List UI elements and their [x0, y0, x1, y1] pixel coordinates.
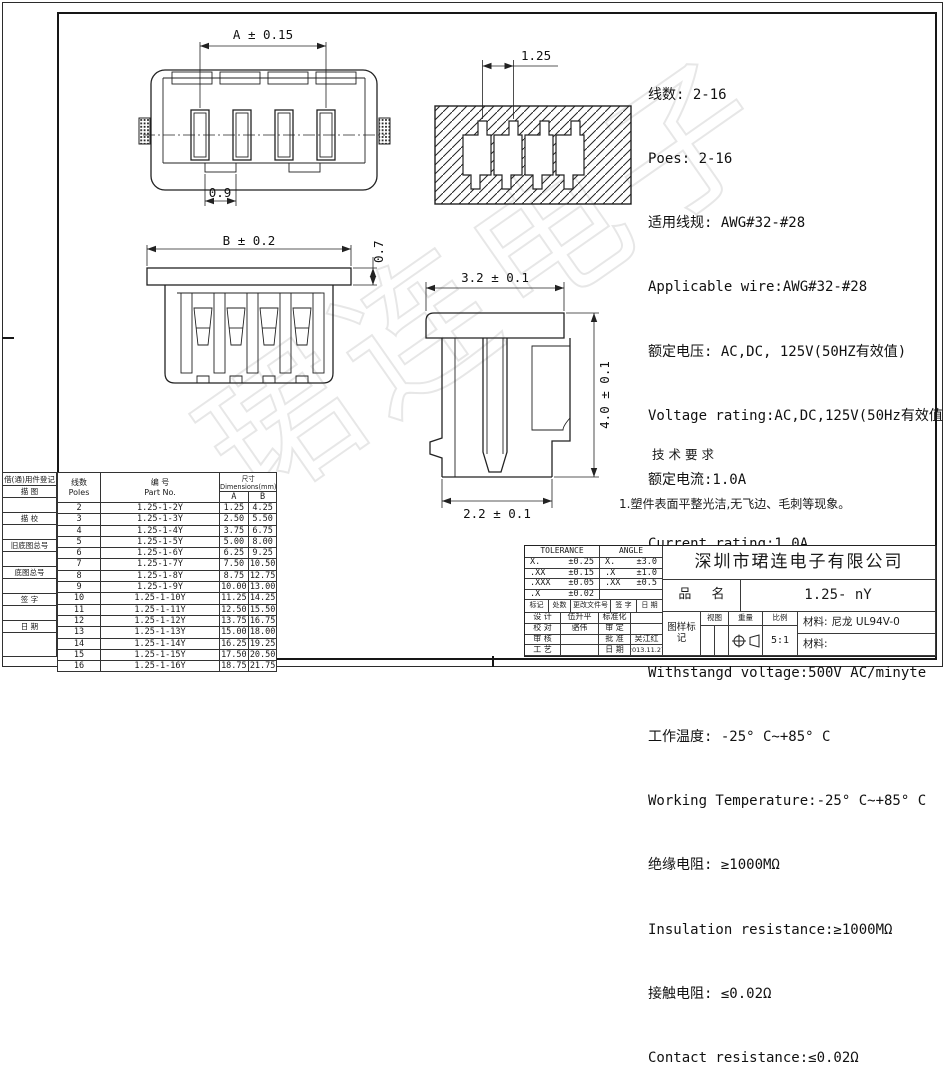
projection-symbol-icon — [731, 634, 761, 648]
spec-line: Voltage rating:AC,DC,125V(50Hz有效值) — [648, 406, 940, 427]
dim-b-label: B ± 0.2 — [223, 233, 276, 248]
spec-line: 绝缘电阻: ≥1000MΩ — [648, 855, 940, 876]
part-name-value: 1.25- nY — [741, 580, 936, 612]
tolerance-row: .XXX±0.05 — [525, 579, 600, 590]
rev-col-docno: 更改文件号 — [571, 600, 611, 613]
connector-section-view: 1.25 — [425, 40, 640, 210]
spec-line: 接触电阻: ≤0.02Ω — [648, 984, 940, 1005]
material-row-1: 材料: 尼龙 UL94V-0 — [798, 612, 936, 634]
table-row: 41.25-1-4Y3.756.75 — [58, 525, 277, 536]
dim-a-label: A ± 0.15 — [233, 27, 293, 42]
angle-row: .X±1.0 — [600, 569, 663, 580]
frame-center-tick-left — [2, 337, 14, 339]
stamp-header-mark: 图样标记 — [663, 612, 701, 656]
dim-flange-label: 0.7 — [371, 240, 386, 263]
dim-slot-label: 0.9 — [209, 185, 232, 200]
margin-header: 借(通)用件登记 — [2, 472, 57, 486]
contact-windows — [194, 308, 311, 345]
rev-col-count: 处数 — [549, 600, 571, 613]
rev-col-sign: 签 字 — [611, 600, 637, 613]
spec-line: Working Temperature:-25° C~+85° C — [648, 791, 940, 812]
sign-label-audit: 审 核 — [525, 635, 561, 646]
col-poles-en: Poles — [58, 488, 100, 498]
title-block: TOLERANCE ANGLE X.±0.25 .XX±0.15 .XXX±0.… — [524, 545, 937, 657]
sign-name-examine — [631, 624, 663, 635]
dim-pitch-label: 1.25 — [521, 48, 551, 63]
col-part-en: Part No. — [101, 488, 219, 498]
sign-name-proof: 骆伟 — [561, 624, 599, 635]
margin-empty-box — [2, 551, 57, 567]
col-dimensions: 尺寸Dimensions(mm) — [220, 473, 277, 492]
margin-empty-box — [2, 632, 57, 657]
margin-empty-box — [2, 578, 57, 594]
side-cavity — [532, 346, 570, 430]
projection-symbol-cell — [729, 626, 763, 656]
housing-outline — [151, 70, 377, 190]
material-label: 材料: — [803, 617, 828, 629]
stamp-empty-box — [701, 626, 715, 656]
col-a: A — [220, 492, 249, 503]
angle-row: .XX±0.5 — [600, 579, 663, 590]
tech-note: 1.塑件表面平整光洁,无飞边、毛刺等现象。 — [619, 496, 850, 514]
table-row: 121.25-1-12Y13.7516.75 — [58, 615, 277, 626]
spec-line: Poes: 2-16 — [648, 149, 940, 170]
frame-center-tick-bottom — [492, 656, 494, 667]
margin-empty-box — [2, 605, 57, 621]
spec-line: 额定电压: AC,DC, 125V(50HZ有效值) — [648, 342, 940, 363]
spec-line: 线数: 2-16 — [648, 85, 940, 106]
sign-name-approve: 吴江红 — [631, 635, 663, 646]
angle-row — [600, 590, 663, 601]
sign-label-date: 日 期 — [599, 645, 631, 656]
stamp-empty-box — [715, 626, 729, 656]
sign-name-audit — [561, 635, 599, 646]
sign-name-process — [561, 645, 599, 656]
connector-top-view: A ± 0.15 0.9 — [133, 20, 398, 220]
col-poles-cn: 线数 — [58, 478, 100, 488]
dim-topwidth-label: 3.2 ± 0.1 — [461, 270, 529, 285]
sign-label-proof: 校 对 — [525, 624, 561, 635]
part-name-label: 品 名 — [663, 580, 741, 612]
bottom-notches — [197, 376, 308, 383]
sign-label-examine: 审 定 — [599, 624, 631, 635]
material-value: 尼龙 UL94V-0 — [832, 617, 900, 629]
table-row: 61.25-1-6Y6.259.25 — [58, 548, 277, 559]
parts-table: 线数 Poles 编 号 Part No. 尺寸Dimensions(mm) A… — [57, 472, 277, 672]
rev-col-mark: 标记 — [525, 600, 549, 613]
side-flange — [426, 313, 564, 338]
spec-line: 工作温度: -25° C~+85° C — [648, 727, 940, 748]
stamp-header-scale: 比例 — [763, 612, 798, 626]
spec-line: 适用线规: AWG#32-#28 — [648, 213, 940, 234]
table-row: 131.25-1-13Y15.0018.00 — [58, 627, 277, 638]
table-row: 111.25-1-11Y12.5015.50 — [58, 604, 277, 615]
table-row: 71.25-1-7Y7.5010.50 — [58, 559, 277, 570]
scale-value: 5:1 — [763, 626, 798, 656]
sign-name-design: 伍升平 — [561, 613, 599, 624]
margin-register-column: 借(通)用件登记 描 图 描 校 旧底图总号 底图总号 签 字 日 期 — [2, 472, 57, 657]
spec-line: Insulation resistance:≥1000MΩ — [648, 920, 940, 941]
side-right-wall — [552, 338, 570, 477]
dim-height-label: 4.0 ± 0.1 — [597, 361, 612, 429]
connector-side-view: 3.2 ± 0.1 4.0 ± 0.1 2.2 ± 0.1 — [403, 268, 638, 523]
flange — [147, 268, 351, 285]
table-row: 141.25-1-14Y16.2519.25 — [58, 638, 277, 649]
stamp-header-view: 视图 — [701, 612, 729, 626]
material-row-2: 材料: — [798, 634, 936, 656]
rev-col-date: 日 期 — [637, 600, 663, 613]
spec-line: Withstangd voltage:500V AC/minyte — [648, 663, 940, 684]
col-b: B — [248, 492, 277, 503]
col-part-cn: 编 号 — [101, 478, 219, 488]
tolerance-row: .X±0.02 — [525, 590, 600, 601]
table-row: 91.25-1-9Y10.0013.00 — [58, 582, 277, 593]
angle-header: ANGLE — [600, 546, 663, 558]
spec-line: Applicable wire:AWG#32-#28 — [648, 277, 940, 298]
sign-date-value: 2013.11.27 — [631, 645, 663, 656]
table-header-row: 线数 Poles 编 号 Part No. 尺寸Dimensions(mm) — [58, 473, 277, 492]
ribs — [181, 293, 324, 373]
knurl-left — [139, 118, 150, 144]
sign-label-approve: 批 准 — [599, 635, 631, 646]
table-row: 21.25-1-2Y1.254.25 — [58, 503, 277, 514]
table-row: 151.25-1-15Y17.5020.50 — [58, 649, 277, 660]
sign-label-design: 设 计 — [525, 613, 561, 624]
tolerance-header: TOLERANCE — [525, 546, 600, 558]
margin-empty-box — [2, 524, 57, 540]
tolerance-row: X.±0.25 — [525, 558, 600, 569]
connector-front-view: B ± 0.2 0.7 — [133, 233, 398, 408]
sign-name-standard — [631, 613, 663, 624]
stamp-header-weight: 重量 — [729, 612, 763, 626]
sign-label-standard: 标准化 — [599, 613, 631, 624]
table-row: 81.25-1-8Y8.7512.75 — [58, 570, 277, 581]
tolerance-row: .XX±0.15 — [525, 569, 600, 580]
margin-empty-box — [2, 497, 57, 513]
knurl-right — [379, 118, 390, 144]
table-row: 51.25-1-5Y5.008.00 — [58, 536, 277, 547]
table-row: 161.25-1-16Y18.7521.75 — [58, 661, 277, 672]
angle-row: X.±3.0 — [600, 558, 663, 569]
spec-line: Contact resistance:≤0.02Ω — [648, 1048, 940, 1069]
company-name: 深圳市珺连电子有限公司 — [663, 546, 936, 580]
sign-label-process: 工 艺 — [525, 645, 561, 656]
dim-bottomwidth-label: 2.2 ± 0.1 — [463, 506, 531, 521]
table-row: 31.25-1-3Y2.505.50 — [58, 514, 277, 525]
material-label: 材料: — [803, 639, 828, 651]
table-row: 101.25-1-10Y11.2514.25 — [58, 593, 277, 604]
side-left-wall — [430, 338, 442, 477]
